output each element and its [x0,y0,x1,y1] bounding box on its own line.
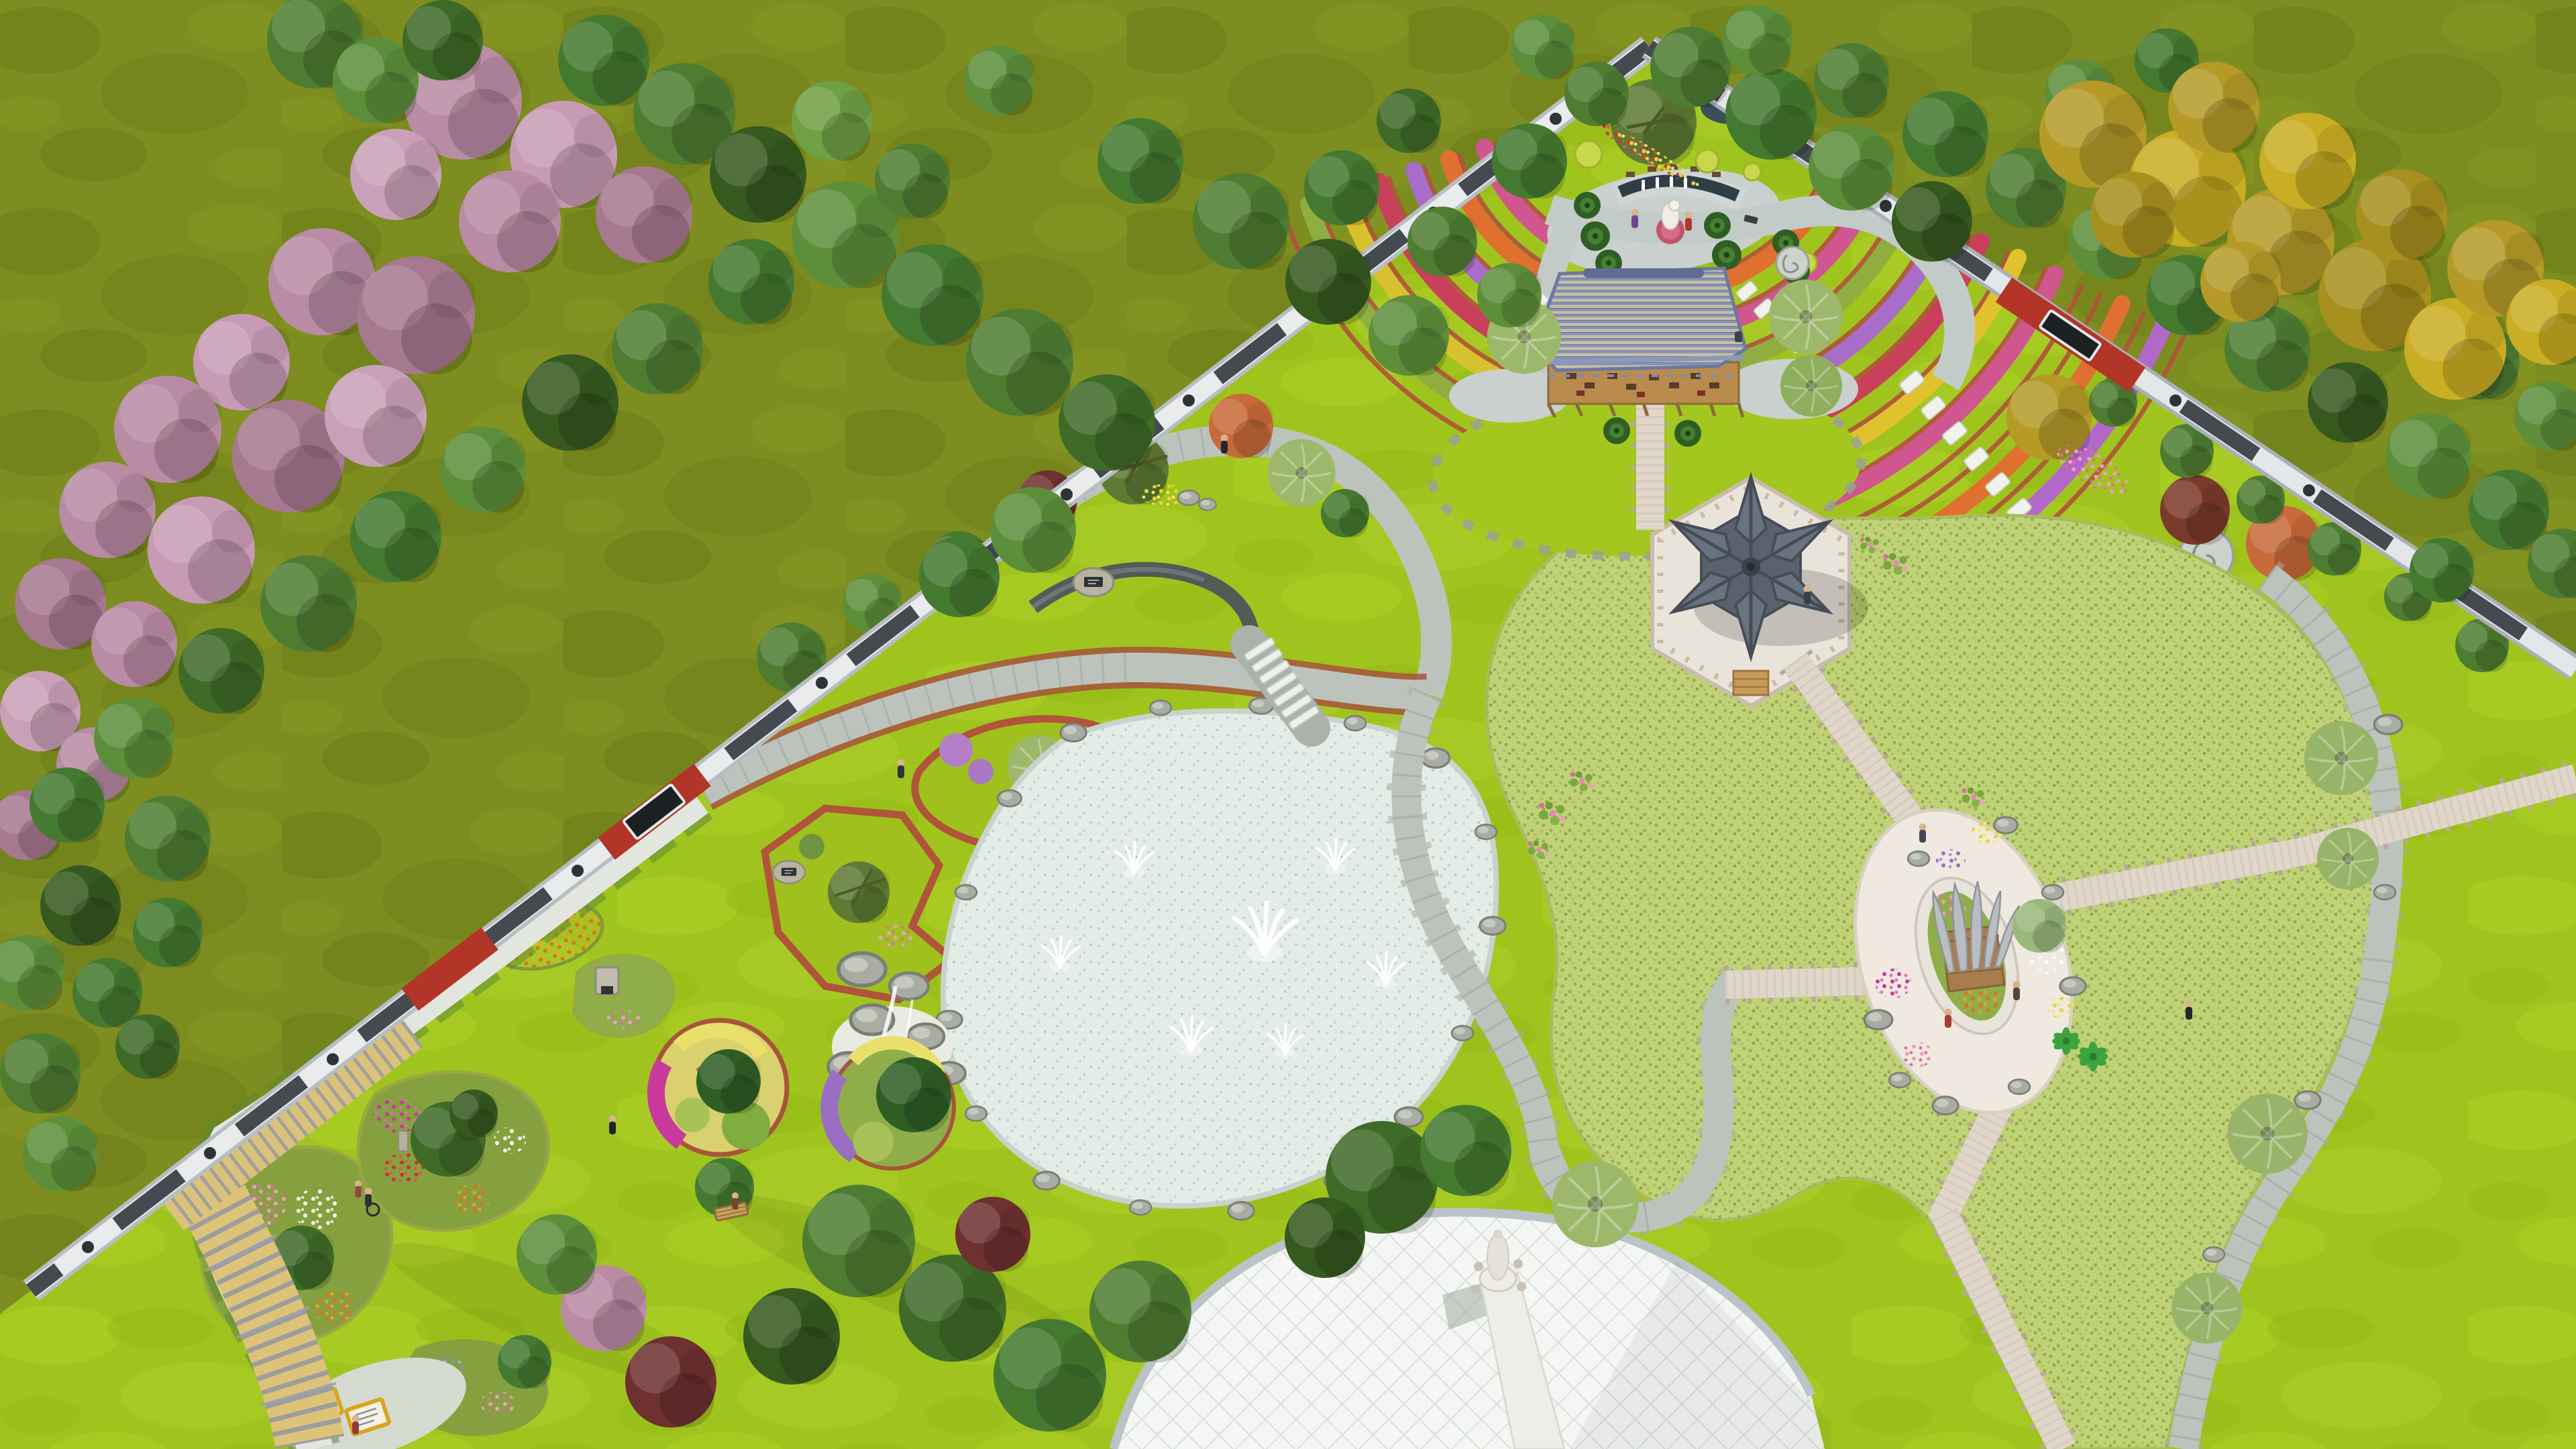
person [2013,981,2021,1001]
person [898,759,905,779]
ring-bed-2 [829,1042,954,1169]
swirl-circle-bed [653,1020,787,1155]
pavilion-roof [1535,268,1746,370]
waste-bin [1735,331,1742,342]
person [1919,824,1927,843]
person [1685,212,1693,231]
person-sitting [732,1193,739,1210]
person [1804,586,1811,605]
garden-scene-canvas [0,0,2576,1449]
garden-aerial-render [0,0,2576,1449]
maroon-tree [2160,475,2230,545]
person [2186,1001,2193,1020]
person [609,1116,616,1135]
person [1945,1009,1952,1028]
engraved-stone-sign [1073,568,1114,596]
willow-tree [1780,355,1842,417]
willow-tree [1769,280,1843,354]
person [1221,435,1228,454]
person [1631,209,1639,229]
pagoda-steps [1733,671,1768,695]
